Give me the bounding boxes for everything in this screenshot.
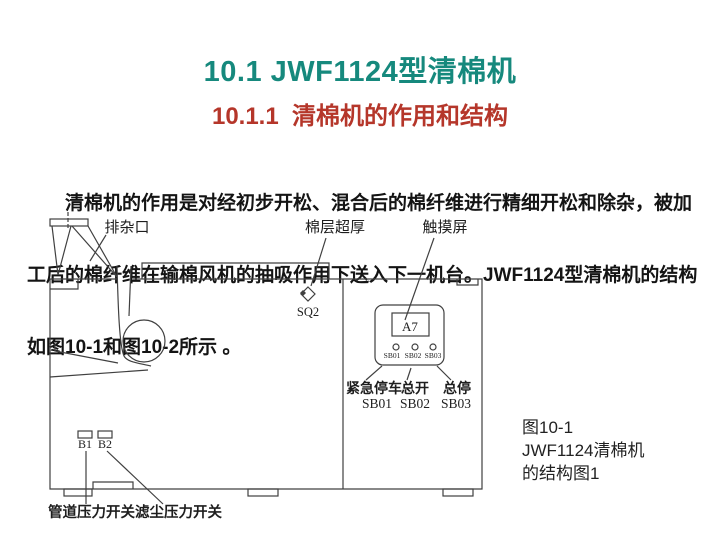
main-on-code: SB02 [400, 396, 430, 411]
beater-roller [123, 320, 165, 362]
sb03-small-label: SB03 [425, 351, 442, 360]
figure-caption: 图10-1 JWF1124清棉机 的结构图1 [522, 416, 645, 485]
caption-line-1: 图10-1 [522, 416, 645, 439]
sq2-sensor-icon [300, 287, 315, 301]
caption-line-2: JWF1124清棉机 [522, 439, 645, 462]
dust-pressure-label: 滤尘压力开关 [135, 503, 222, 521]
main-stop-label: 总停 [443, 380, 471, 397]
main-stop-code: SB03 [441, 396, 471, 411]
sb02-small-label: SB02 [405, 351, 422, 360]
button-sb02 [412, 344, 418, 350]
caption-line-3: 的结构图1 [522, 462, 645, 485]
slide: 10.1 JWF1124型清棉机 10.1.1 清棉机的作用和结构 清棉机的作用… [0, 0, 720, 540]
a7-label: A7 [402, 319, 418, 334]
cotton-layer-label: 棉层超厚 [305, 219, 365, 236]
machine-body [50, 263, 482, 496]
sq2-label: SQ2 [297, 305, 319, 319]
sb01-small-label: SB01 [384, 351, 401, 360]
touch-screen-label: 触摸屏 [422, 219, 467, 236]
feed-chute [50, 266, 165, 377]
button-sb01 [393, 344, 399, 350]
main-on-label: 总开 [401, 380, 429, 397]
machine-foot-left [64, 489, 92, 496]
pipe-pressure-label: 管道压力开关 [48, 503, 135, 521]
machine-foot-middle [248, 489, 278, 496]
button-sb03 [430, 344, 436, 350]
emergency-stop-code: SB01 [362, 396, 392, 411]
control-panel [366, 305, 451, 380]
b2-label: B2 [98, 437, 112, 451]
emergency-stop-label: 紧急停车 [346, 380, 402, 397]
machine-foot-right [443, 489, 473, 496]
b1-label: B1 [78, 437, 92, 451]
waste-port-label: 排杂口 [104, 219, 149, 236]
